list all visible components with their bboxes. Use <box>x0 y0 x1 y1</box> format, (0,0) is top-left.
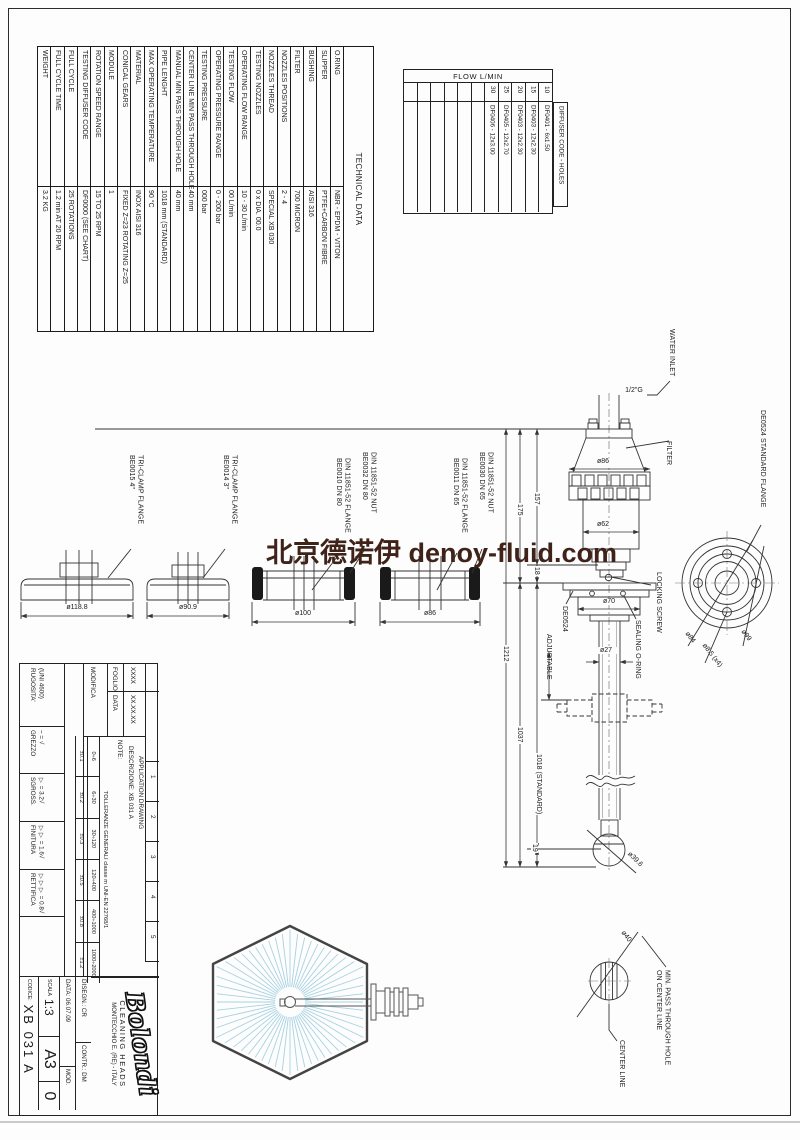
tech-row-value: 0 - 200 bar <box>211 187 224 332</box>
tech-row-value: 25 ROTATIONS <box>64 187 77 332</box>
locking-screw-label: LOCKING SCREW <box>653 572 662 633</box>
tech-row-label: ROTATION SPEED RANGE <box>91 47 104 187</box>
flow-table-title: FLOW L/MIN <box>404 70 552 83</box>
tech-row-value: 10 - 30 L/min <box>237 187 250 332</box>
dim-175: 175 <box>516 503 523 517</box>
mod-cell: MOD. <box>60 1067 75 1110</box>
tech-row-value: 1.2 min AT 20 RPM <box>51 187 64 332</box>
tech-row-value: SPECIAL XB 030 <box>264 187 277 332</box>
tol-range: 400÷1000 <box>87 900 99 941</box>
tech-row-label: SLIPPER <box>317 47 330 187</box>
foglio-label: FOGLIO <box>110 667 118 691</box>
tech-row-value: FIXED Z=23 ROTATING Z=25 <box>117 187 130 332</box>
rev-col-2: 2 <box>148 815 156 819</box>
tech-row-label: TESTING FLOW <box>224 47 237 187</box>
foglio-value: XXXX <box>128 667 136 684</box>
codice-label: CODICE: <box>26 979 32 1001</box>
rev-cell: 0 <box>39 1082 59 1110</box>
din80-dim: ø100 <box>281 610 325 617</box>
tech-row-value: 2 - 4 <box>277 187 290 332</box>
tech-row-label: NOZZLES THREAD <box>264 47 277 187</box>
disegn-cell: DISEGN.: CR <box>76 977 91 1043</box>
din65-flange-label: BE0011 DN 65DIN 11851-52 FLANGE <box>450 458 468 533</box>
standard-flange-label: DE0524 STANDARD FLANGE <box>757 410 766 507</box>
tech-row-value: 15 TO 25 RPM <box>91 187 104 332</box>
technical-data-title: TECHNICAL DATA <box>344 47 374 332</box>
rev-col-5: 5 <box>148 935 156 939</box>
scan-edge <box>0 1121 800 1123</box>
tech-row-value: PTFE+CARBON FIBRE <box>317 187 330 332</box>
flow-table-side-header: DIFFUSER CODE - HOLES <box>553 102 568 207</box>
technical-data-table: TECHNICAL DATA O.RINGNBR - EPDM - VITON … <box>37 46 374 331</box>
flow-table: FLOW L/MIN 30 25 20 15 10 DF0406 - 12x3.… <box>403 69 553 214</box>
tol-value: ±0.1 <box>75 736 87 776</box>
tech-row-label: MANUAL MIN PASS THROUGH HOLE <box>171 47 184 187</box>
flow-value: 15 <box>529 83 536 93</box>
tech-row-value: 00 L/min <box>224 187 237 332</box>
dim-d27: ø27 <box>593 647 619 654</box>
dim-d86: ø86 <box>590 458 616 465</box>
din80-nut-label: BE0032 DN 80DIN 11851-52 NUT <box>359 452 377 513</box>
din65-dim: ø86 <box>408 610 452 617</box>
format-cell: A3 <box>39 1037 59 1082</box>
diffuser-code: DF0401 - 6x1.50 <box>543 102 549 151</box>
descrizione-line1: DESCRIZIONE: XB 031 A <box>126 746 134 819</box>
note-label: NOTE: <box>115 740 123 759</box>
tech-row-label: OPERATING PRESSURE RANGE <box>211 47 224 187</box>
min-pass-label: MIN. PASS THROUGH HOLEON CENTER LINE <box>653 970 671 1065</box>
rev-col-1: 1 <box>148 775 156 779</box>
tech-row-value: 90 °C <box>144 187 157 332</box>
diffuser-code: DF0406 - 12x3.00 <box>488 102 494 155</box>
adjustable-label: ADJUSTABLE <box>543 634 552 680</box>
roughness-row-grezzo: GREZZO~ = √ <box>28 730 44 756</box>
center-line-label: CENTER LINE <box>616 1040 625 1087</box>
tech-row-label: WEIGHT <box>38 47 51 187</box>
tri-clamp-3-dim: ø90.9 <box>166 604 210 611</box>
tech-row-label: TESTING DIFFUSER CODE <box>78 47 91 187</box>
tech-row-value: 700 MICRON <box>290 187 303 332</box>
tech-row-value: 000 bar <box>197 187 210 332</box>
tol-range: 0÷6 <box>87 736 99 776</box>
tri-clamp-3-label: BE0014 3"TRI-CLAMP FLANGE <box>220 455 238 524</box>
tol-value: ±0.8 <box>75 900 87 941</box>
tech-row-label: CONICAL GEARS <box>117 47 130 187</box>
tol-value: ±0.3 <box>75 818 87 859</box>
dim-d62: ø62 <box>590 521 616 528</box>
tech-row-label: BUSHING <box>304 47 317 187</box>
drawing-info-section: DISEGN.: CR CONTR.: DM DATA: 06.07.09 MO… <box>20 977 91 1110</box>
tol-range: 120÷400 <box>87 859 99 900</box>
tol-range: 6÷30 <box>87 776 99 817</box>
tech-row-label: TESTING NOZZLES <box>250 47 263 187</box>
roughness-row-sgross: SGROSS.▽ = 3.2√ <box>28 777 44 806</box>
tech-row-value: DF0000 (SEE CHART) <box>78 187 91 332</box>
tol-range: 30÷120 <box>87 818 99 859</box>
watermark: 北京德诺伊 denoy-fluid.com <box>266 531 617 570</box>
tech-row-value: 3.2 KG <box>38 187 51 332</box>
tolerances-header: TOLLERANZE GENERALI classe m UNI-EN 2276… <box>99 736 111 983</box>
tech-row-label: TESTING PRESSURE <box>197 47 210 187</box>
diffuser-code: DF0403 - 12x2.30 <box>516 102 522 155</box>
tolerances-table: TOLLERANZE GENERALI classe m UNI-EN 2276… <box>75 736 111 983</box>
scala-label: SCALA <box>46 979 52 996</box>
tech-row-label: MATERIAL <box>131 47 144 187</box>
dim-1212: 1212 <box>502 645 509 663</box>
tech-row-value: INOX AISI 316 <box>131 187 144 332</box>
tech-row-label: NOZZLES POSITIONS <box>277 47 290 187</box>
tri-clamp-4-label: BE0015 4"TRI-CLAMP FLANGE <box>126 455 144 524</box>
diffuser-code: DF0405 - 12x2.70 <box>502 102 508 155</box>
tri-clamp-4-dim: ø118.8 <box>55 604 99 611</box>
company-address: MONTECCHIO E. (RE) - ITALY <box>110 978 116 1110</box>
tech-row-label: MODULE <box>104 47 117 187</box>
tech-row-value: 40 mm <box>171 187 184 332</box>
sealing-oring-label: SEALING O-RING <box>632 620 641 679</box>
rev-col-4: 4 <box>148 895 156 899</box>
inlet-thread-label: 1/2"G <box>619 387 649 394</box>
roughness-header: RUGOSITA'(UNI 4600) <box>28 668 44 702</box>
dim-157: 157 <box>533 492 540 506</box>
descrizione-line2: APPLICATION DRAWING <box>136 756 144 829</box>
tech-row-value: 0 x DIA. 00.0 <box>250 187 263 332</box>
din80-flange-label: BE0010 DN 80DIN 11851-52 FLANGE <box>333 458 351 533</box>
roughness-row-finitura: FINITURA▽▽ = 1.6√ <box>28 825 44 858</box>
water-inlet-label: WATER INLET <box>666 329 675 376</box>
tech-row-value: 1018 mm (STANDARD) <box>157 187 170 332</box>
flow-value: 10 <box>542 83 549 93</box>
title-block: RUGOSITA'(UNI 4600) GREZZO~ = √ SGROSS.▽… <box>19 663 158 1116</box>
tol-value: ±0.2 <box>75 776 87 817</box>
tech-row-value: 1 <box>104 187 117 332</box>
flow-value: 30 <box>488 83 495 93</box>
data-label: DATA <box>110 695 118 711</box>
dim-1037: 1037 <box>516 726 523 744</box>
tech-row-label: MAX OPERATING TEMPERATURE <box>144 47 157 187</box>
tech-row-label: O.RING <box>330 47 343 187</box>
rev-col-3: 3 <box>148 855 156 859</box>
tech-row-label: OPERATING FLOW RANGE <box>237 47 250 187</box>
dim-19: 19 <box>531 843 538 853</box>
tech-row-label: FULL CYCLE <box>64 47 77 187</box>
roughness-row-rettifica: RETTIFICA▽▽▽ = 0.8√ <box>28 873 44 913</box>
filter-label: FILTER <box>663 441 672 465</box>
flow-value: 25 <box>502 83 509 93</box>
tech-row-label: FULL CYCLE TIME <box>51 47 64 187</box>
scala-value: 1:3 <box>42 999 56 1016</box>
codice-value: XB 031 A <box>22 1005 37 1075</box>
modifica-label: MODIFICA <box>88 667 96 698</box>
de0524-label: DE0524 <box>559 606 568 632</box>
dim-1018: 1018 (STANDARD) <box>535 753 542 815</box>
flow-value: 20 <box>515 83 522 93</box>
tech-row-value: AISI 316 <box>304 187 317 332</box>
diffuser-code: DF0403 - 12x2.30 <box>529 102 535 155</box>
tech-row-label: CENTER LINE MIN PASS THROUGH HOLE <box>184 47 197 187</box>
tech-row-label: FILTER <box>290 47 303 187</box>
date-cell: DATA: 06.07.09 <box>60 977 75 1067</box>
drawing-sheet: TECHNICAL DATA O.RINGNBR - EPDM - VITON … <box>0 0 800 1140</box>
tol-value: ±0.5 <box>75 859 87 900</box>
tech-row-value: 40 mm <box>184 187 197 332</box>
data-value: XX.XX.XX <box>128 695 136 724</box>
din65-nut-label: BE0030 DN 65DIN 11851-52 NUT <box>476 452 494 513</box>
dim-d70: ø70 <box>596 598 622 605</box>
tech-row-label: PIPE LENGHT <box>157 47 170 187</box>
tech-row-value: NBR - EPDM - VITON <box>330 187 343 332</box>
contr-cell: CONTR.: DM <box>76 1043 91 1110</box>
company-section: Bolondi CLEANING HEADS MONTECCHIO E. (RE… <box>91 977 159 1110</box>
